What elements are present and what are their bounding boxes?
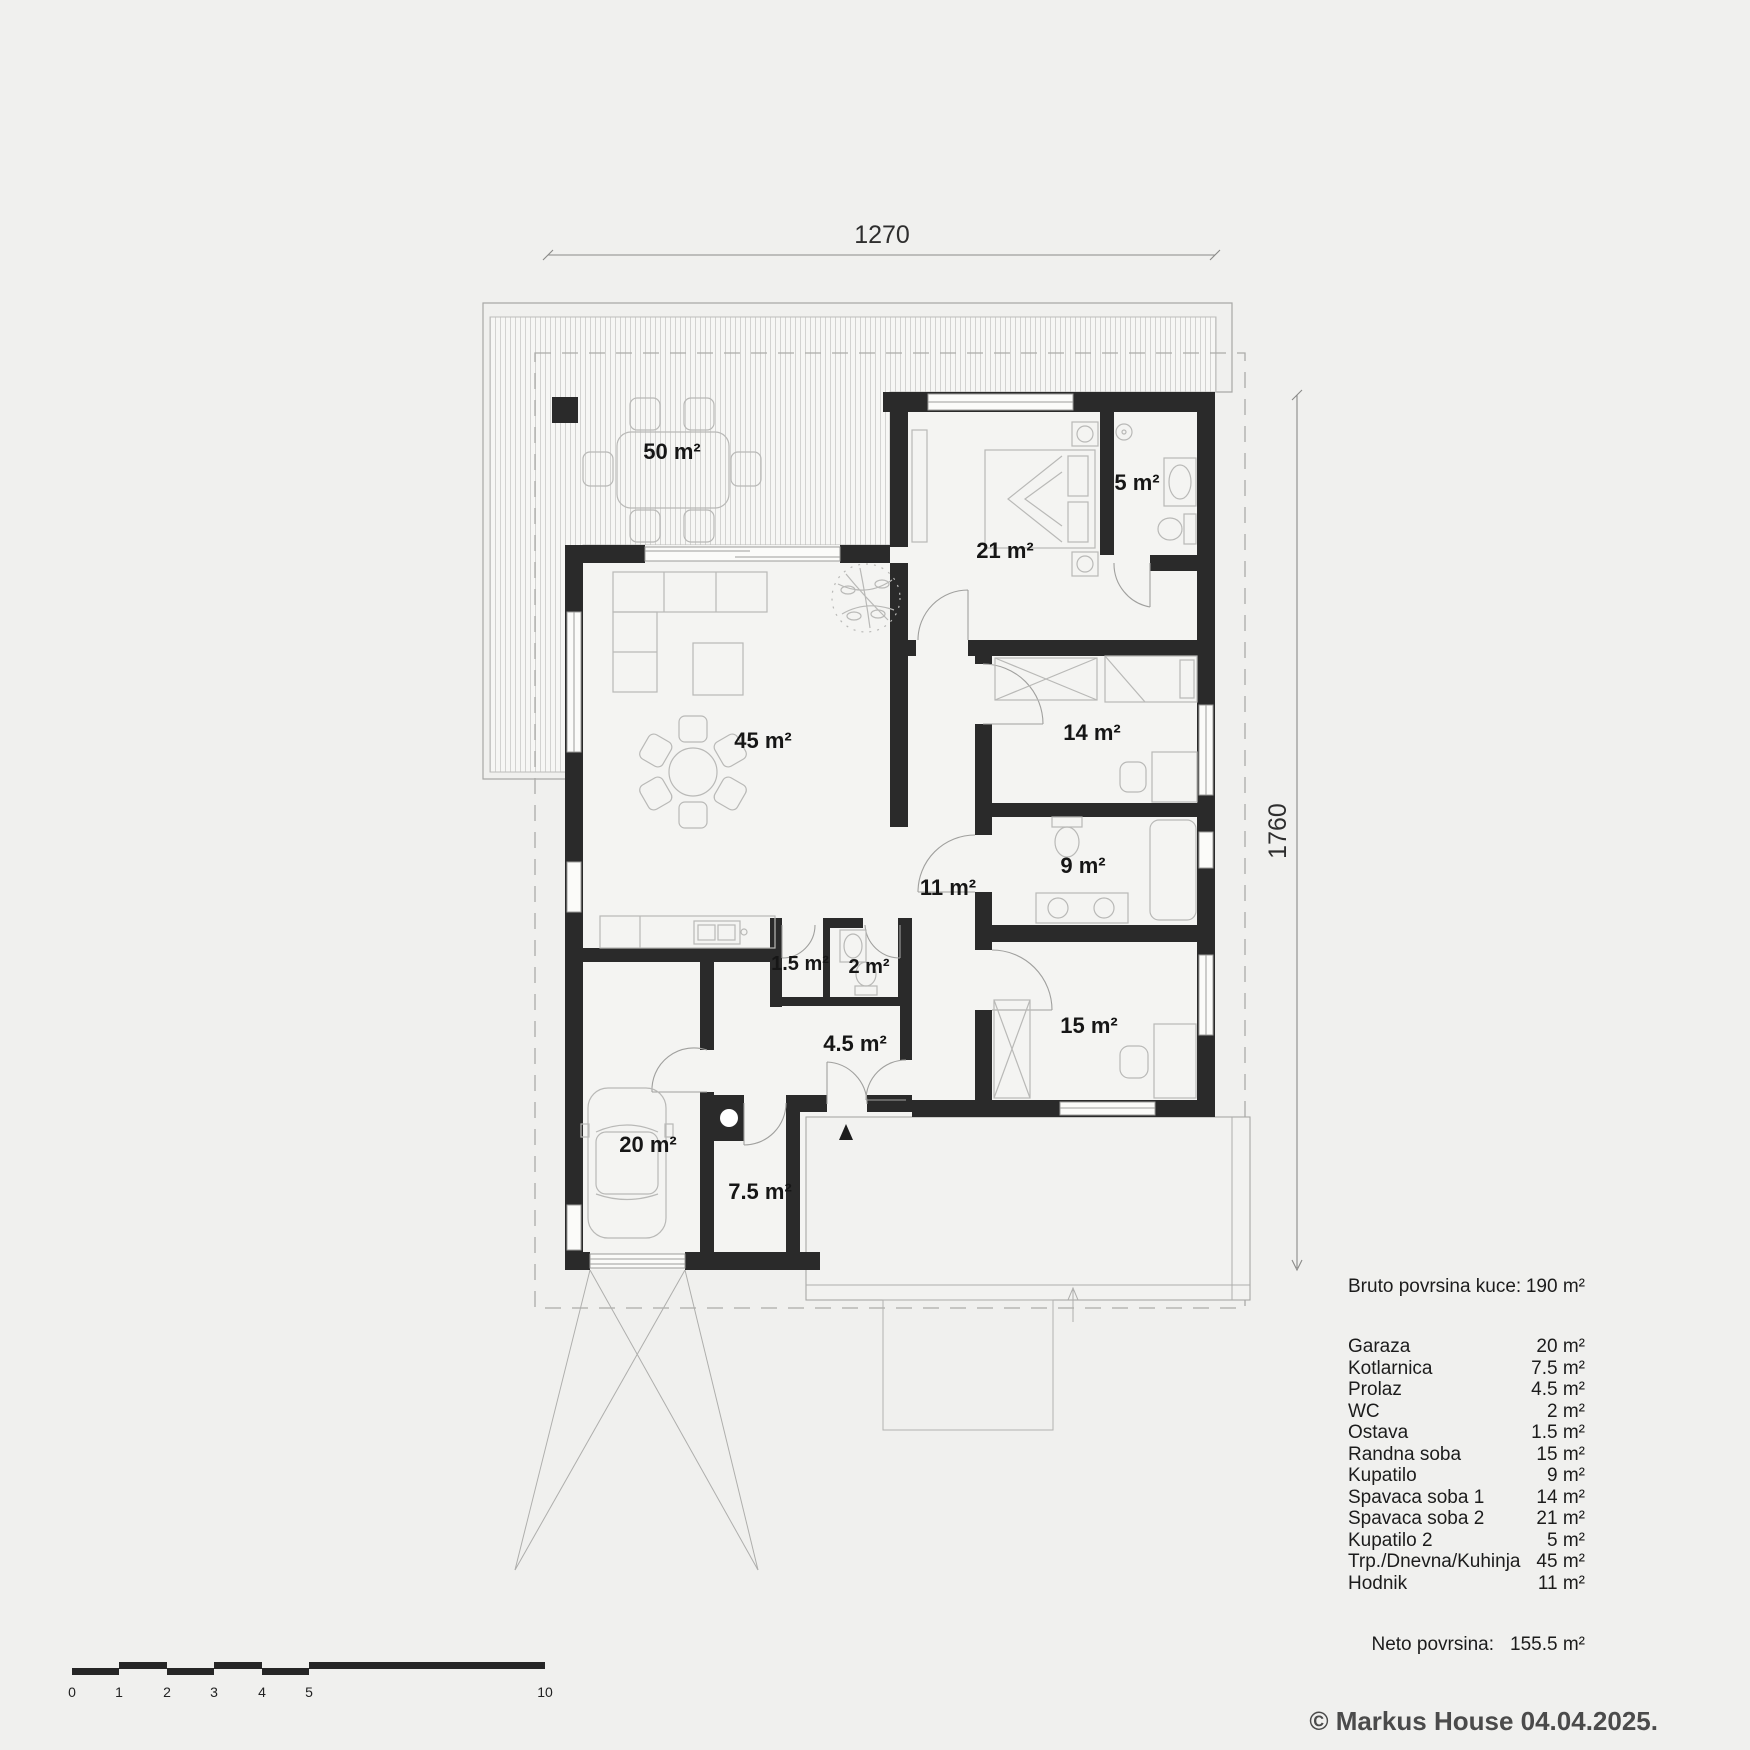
legend-room-area: 2 m² — [1547, 1401, 1585, 1422]
legend-room-area: 1.5 m² — [1531, 1422, 1585, 1443]
legend-net-label: Neto povrsina: — [1371, 1634, 1494, 1655]
legend-room-name: Ostava — [1348, 1422, 1409, 1443]
dimension-top-value: 1270 — [854, 221, 910, 249]
legend-room-area: 20 m² — [1536, 1336, 1585, 1357]
room-label-boiler: 7.5 m² — [728, 1179, 792, 1204]
scale-bar: 0 1 2 3 4 5 10 — [68, 1662, 553, 1700]
terrace-slider — [645, 547, 840, 561]
legend-room-name: Randna soba — [1348, 1444, 1461, 1465]
legend-net-value: 155.5 m² — [1510, 1634, 1585, 1655]
legend-room-name: Garaza — [1348, 1336, 1411, 1357]
legend-room-area: 45 m² — [1536, 1551, 1585, 1572]
room-label-hallway: 11 m² — [920, 875, 976, 900]
legend-room-area: 21 m² — [1536, 1508, 1585, 1529]
dimension-right-value: 1760 — [1264, 803, 1292, 859]
room-label-garage: 20 m² — [619, 1132, 676, 1157]
scale-tick: 3 — [210, 1684, 218, 1700]
legend-room-name: Kupatilo — [1348, 1465, 1417, 1486]
room-label-passage: 4.5 m² — [823, 1031, 887, 1056]
legend-room-name: Spavaca soba 1 — [1348, 1487, 1484, 1508]
legend-room-area: 5 m² — [1547, 1530, 1585, 1551]
legend-room-area: 7.5 m² — [1531, 1358, 1585, 1379]
scale-tick: 2 — [163, 1684, 171, 1700]
legend-room-name: Prolaz — [1348, 1379, 1402, 1400]
room-label-bedroom2: 21 m² — [976, 538, 1033, 563]
legend-room-area: 11 m² — [1538, 1573, 1585, 1594]
driveway — [515, 1270, 758, 1570]
legend-gross-label: Bruto povrsina kuce: — [1348, 1276, 1521, 1297]
legend: Bruto povrsina kuce: 190 m² Garaza 20 m²… — [1348, 1276, 1585, 1655]
scale-tick: 0 — [68, 1684, 76, 1700]
dimension-top: 1270 — [543, 221, 1220, 260]
garage-door — [590, 1254, 685, 1268]
legend-room-name: Kotlarnica — [1348, 1358, 1433, 1379]
legend-room-area: 4.5 m² — [1531, 1379, 1585, 1400]
room-label-bathroom2: 5 m² — [1114, 470, 1159, 495]
copyright-text: © Markus House 04.04.2025. — [1309, 1706, 1658, 1736]
room-label-workroom: 15 m² — [1060, 1013, 1117, 1038]
entry-porch — [806, 1117, 1250, 1322]
legend-room-name: WC — [1348, 1401, 1380, 1422]
scale-tick: 4 — [258, 1684, 266, 1700]
scale-tick: 1 — [115, 1684, 123, 1700]
room-label-bedroom1: 14 m² — [1063, 720, 1120, 745]
chimney — [552, 397, 578, 423]
legend-room-area: 14 m² — [1536, 1487, 1585, 1508]
boiler-icon — [720, 1109, 738, 1127]
room-label-bathroom: 9 m² — [1060, 853, 1105, 878]
legend-room-area: 9 m² — [1547, 1465, 1585, 1486]
legend-room-name: Kupatilo 2 — [1348, 1530, 1433, 1551]
legend-room-name: Trp./Dnevna/Kuhinja — [1348, 1551, 1521, 1572]
legend-room-area: 15 m² — [1536, 1444, 1585, 1465]
legend-gross-value: 190 m² — [1526, 1276, 1585, 1297]
scale-tick: 10 — [537, 1684, 553, 1700]
legend-room-name: Spavaca soba 2 — [1348, 1508, 1484, 1529]
room-label-storage: 1.5 m² — [771, 953, 829, 975]
room-label-terrace: 50 m² — [643, 439, 700, 464]
floor-plan-canvas: 50 m² 45 m² 21 m² 5 m² 14 m² 9 m² 11 m² … — [0, 0, 1750, 1750]
dimension-right: 1760 — [1264, 390, 1302, 1270]
entry-walkway — [883, 1300, 1053, 1430]
legend-room-name: Hodnik — [1348, 1573, 1408, 1594]
room-label-wc: 2 m² — [848, 956, 889, 978]
scale-tick: 5 — [305, 1684, 313, 1700]
room-label-living: 45 m² — [734, 728, 791, 753]
